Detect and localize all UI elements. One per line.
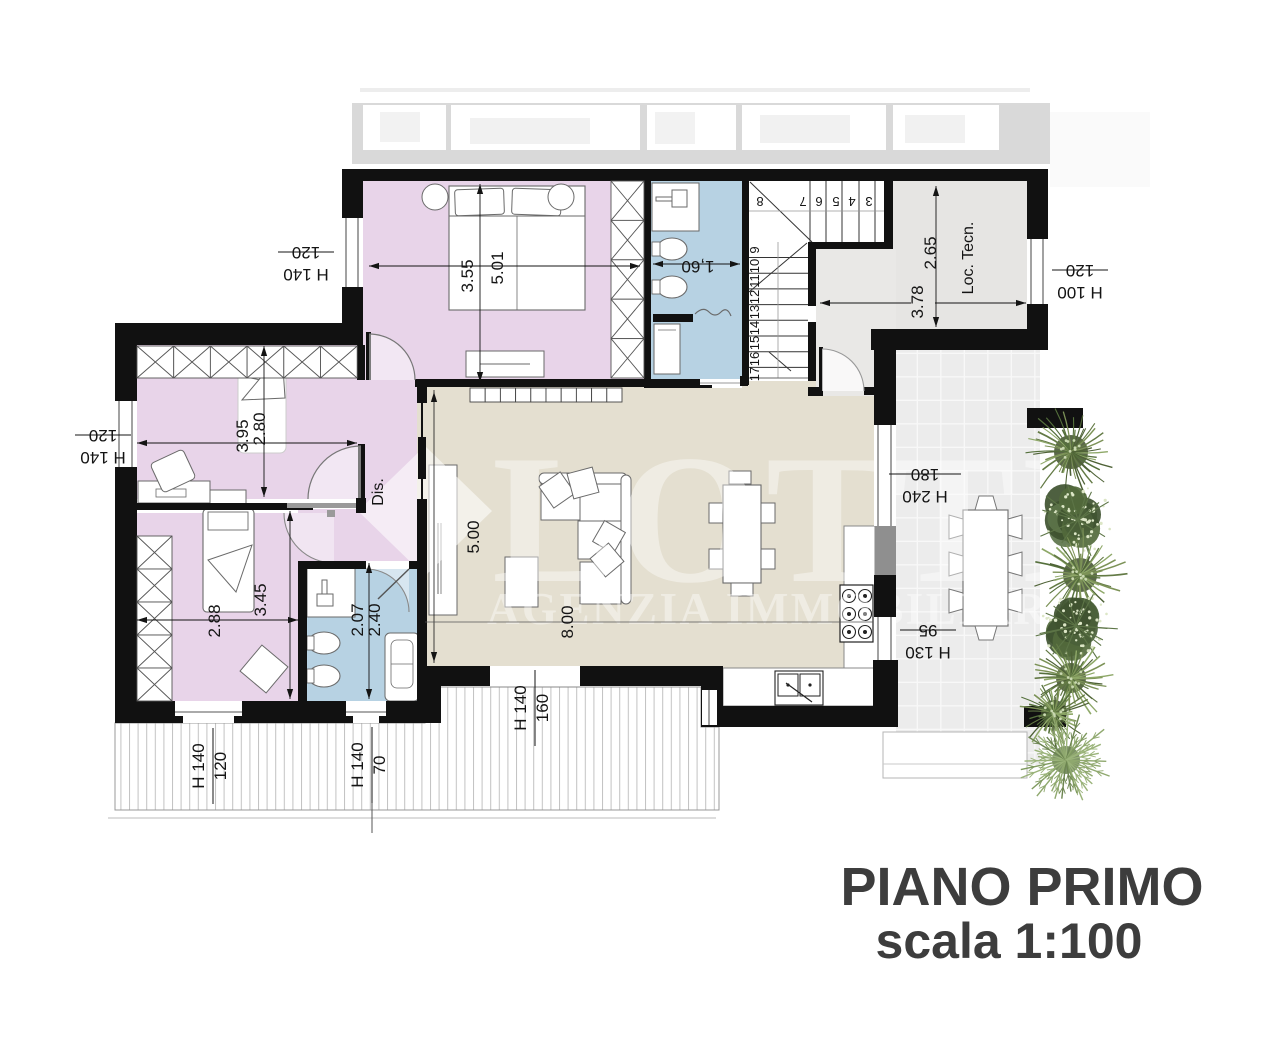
svg-text:5.01: 5.01 — [488, 251, 507, 284]
svg-text:5.00: 5.00 — [464, 520, 483, 553]
svg-text:8: 8 — [756, 194, 763, 209]
svg-text:H 140: H 140 — [189, 743, 208, 788]
svg-text:11: 11 — [747, 274, 762, 288]
svg-text:2.40: 2.40 — [365, 603, 384, 636]
svg-text:120: 120 — [211, 752, 230, 780]
svg-text:3.55: 3.55 — [458, 259, 477, 292]
svg-text:2.65: 2.65 — [921, 236, 940, 269]
svg-text:4: 4 — [848, 194, 855, 209]
svg-text:15: 15 — [747, 336, 762, 350]
svg-text:10: 10 — [747, 259, 762, 273]
svg-text:H 140: H 140 — [511, 685, 530, 730]
svg-text:H 140: H 140 — [283, 265, 328, 284]
svg-text:H 100: H 100 — [1057, 283, 1102, 302]
svg-text:3.45: 3.45 — [251, 583, 270, 616]
svg-text:3.78: 3.78 — [908, 285, 927, 318]
svg-text:5: 5 — [832, 194, 839, 209]
svg-text:6: 6 — [815, 194, 822, 209]
svg-text:2.80: 2.80 — [250, 412, 269, 445]
svg-text:H 140: H 140 — [80, 448, 125, 467]
svg-text:9: 9 — [747, 246, 762, 253]
svg-text:2.88: 2.88 — [205, 604, 224, 637]
svg-text:Dis.: Dis. — [370, 478, 387, 506]
svg-text:17: 17 — [747, 367, 762, 381]
svg-text:3: 3 — [865, 194, 872, 209]
svg-text:H 130: H 130 — [905, 643, 950, 662]
svg-text:1,60: 1,60 — [681, 257, 714, 276]
svg-text:14: 14 — [747, 321, 762, 335]
svg-text:160: 160 — [533, 694, 552, 722]
svg-text:PIANO PRIMO: PIANO PRIMO — [840, 857, 1203, 917]
svg-text:H 240: H 240 — [902, 487, 947, 506]
svg-text:H 140: H 140 — [348, 742, 367, 787]
svg-text:12: 12 — [747, 290, 762, 304]
svg-text:16: 16 — [747, 352, 762, 366]
svg-text:70: 70 — [370, 756, 389, 775]
svg-text:7: 7 — [799, 194, 806, 209]
svg-text:13: 13 — [747, 305, 762, 319]
svg-text:8.00: 8.00 — [558, 605, 577, 638]
svg-text:scala 1:100: scala 1:100 — [876, 913, 1143, 969]
svg-text:Loc. Tecn.: Loc. Tecn. — [960, 222, 977, 295]
